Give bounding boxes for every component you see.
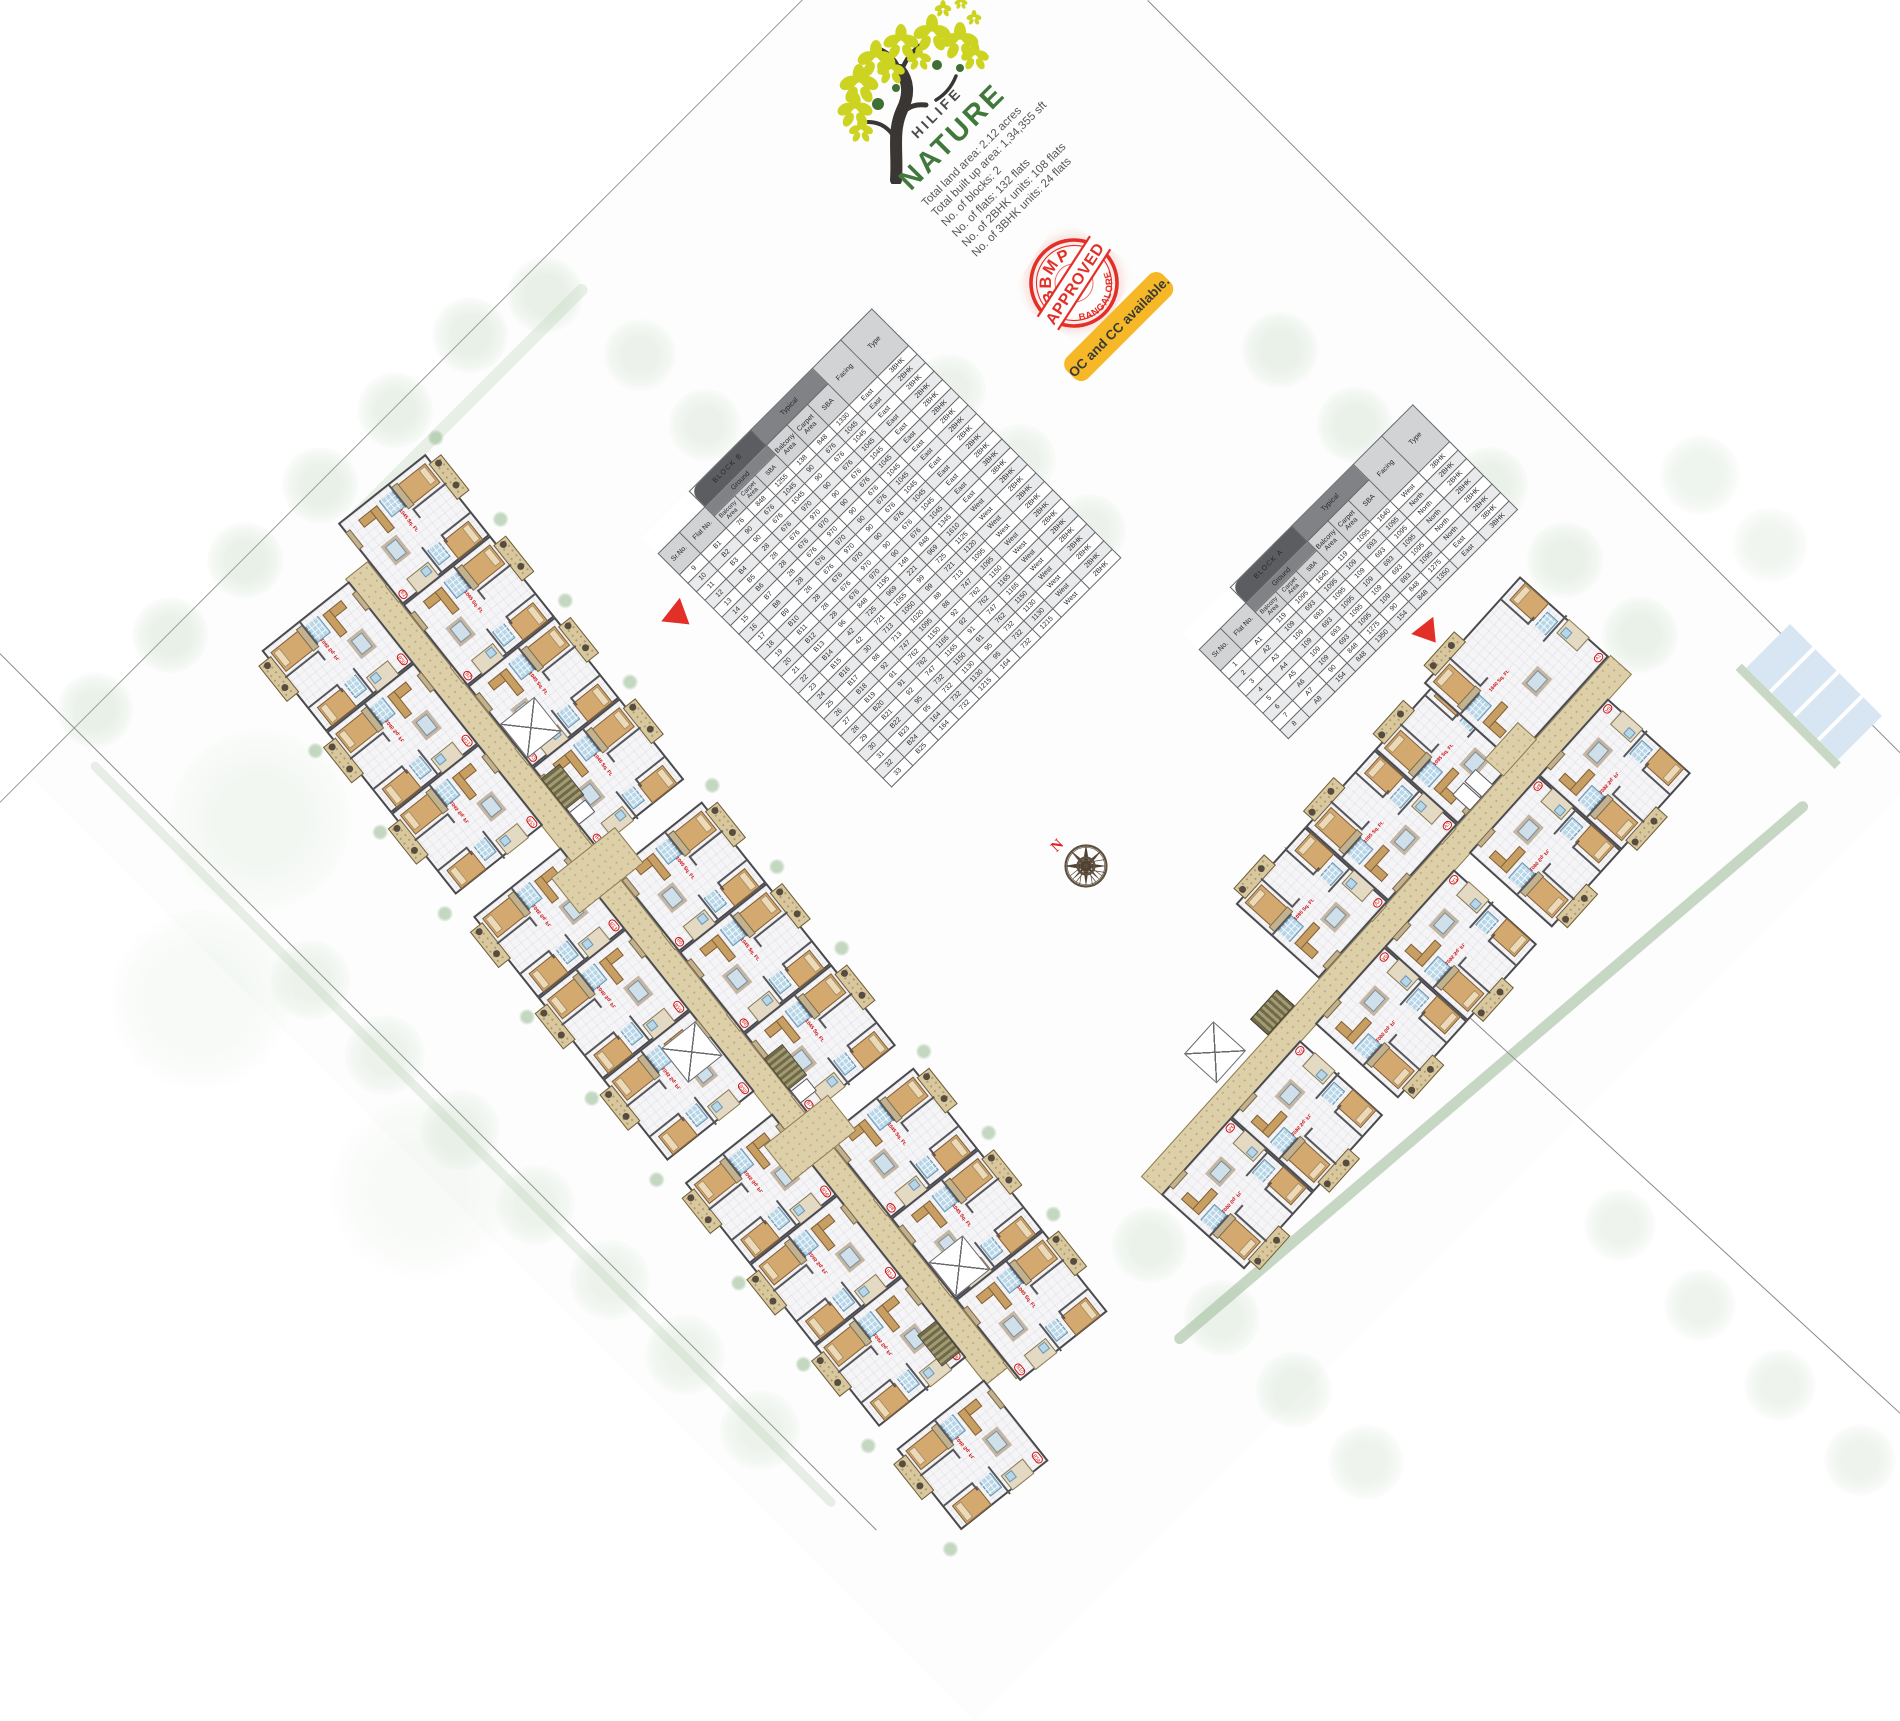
- svg-text:B: B: [1037, 276, 1055, 288]
